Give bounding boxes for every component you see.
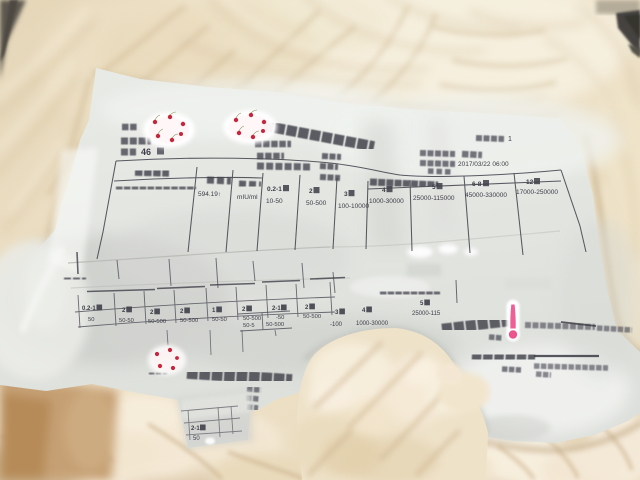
svg-text:-50: -50 bbox=[276, 315, 284, 321]
svg-text:25000-115: 25000-115 bbox=[412, 311, 441, 317]
svg-text:50: 50 bbox=[193, 436, 200, 442]
svg-text:594.19↑: 594.19↑ bbox=[198, 191, 221, 198]
svg-text:4: 4 bbox=[382, 187, 386, 194]
svg-text:10-50: 10-50 bbox=[266, 198, 283, 205]
svg-text:17000-250000: 17000-250000 bbox=[516, 189, 558, 196]
svg-text:50-500: 50-500 bbox=[148, 319, 166, 325]
svg-text:-100: -100 bbox=[330, 322, 343, 328]
svg-text:0.2-1: 0.2-1 bbox=[82, 306, 96, 312]
svg-text:2-1: 2-1 bbox=[272, 306, 281, 312]
svg-text:50-500: 50-500 bbox=[243, 316, 261, 322]
svg-text:2-1: 2-1 bbox=[191, 426, 200, 432]
svg-text:50-500: 50-500 bbox=[266, 322, 284, 328]
svg-text:0.2-1: 0.2-1 bbox=[267, 186, 282, 193]
svg-text:50: 50 bbox=[88, 317, 94, 323]
svg-text:2017/03/22 06:00: 2017/03/22 06:00 bbox=[458, 161, 509, 168]
svg-text:1000-30000: 1000-30000 bbox=[356, 321, 389, 327]
svg-text:2: 2 bbox=[309, 188, 313, 195]
svg-text:25000-115000: 25000-115000 bbox=[413, 195, 455, 202]
svg-text:1000-30000: 1000-30000 bbox=[369, 198, 404, 205]
svg-text:50-50: 50-50 bbox=[212, 317, 227, 323]
svg-text:45000-330000: 45000-330000 bbox=[465, 192, 507, 199]
svg-text:50-5: 50-5 bbox=[243, 323, 255, 329]
svg-text:6-8: 6-8 bbox=[472, 181, 482, 188]
svg-text:50-500: 50-500 bbox=[306, 200, 327, 207]
svg-text:50-50: 50-50 bbox=[119, 318, 134, 324]
svg-text:5: 5 bbox=[432, 184, 436, 191]
svg-text:1: 1 bbox=[508, 136, 512, 143]
svg-text:46: 46 bbox=[141, 147, 151, 157]
svg-text:50-500: 50-500 bbox=[303, 314, 321, 320]
svg-text:12: 12 bbox=[526, 179, 534, 186]
svg-text:mIU/ml: mIU/ml bbox=[237, 194, 258, 201]
svg-text:50-500: 50-500 bbox=[180, 318, 198, 324]
svg-text:100-10000: 100-10000 bbox=[338, 203, 369, 210]
svg-text:3: 3 bbox=[344, 191, 348, 198]
